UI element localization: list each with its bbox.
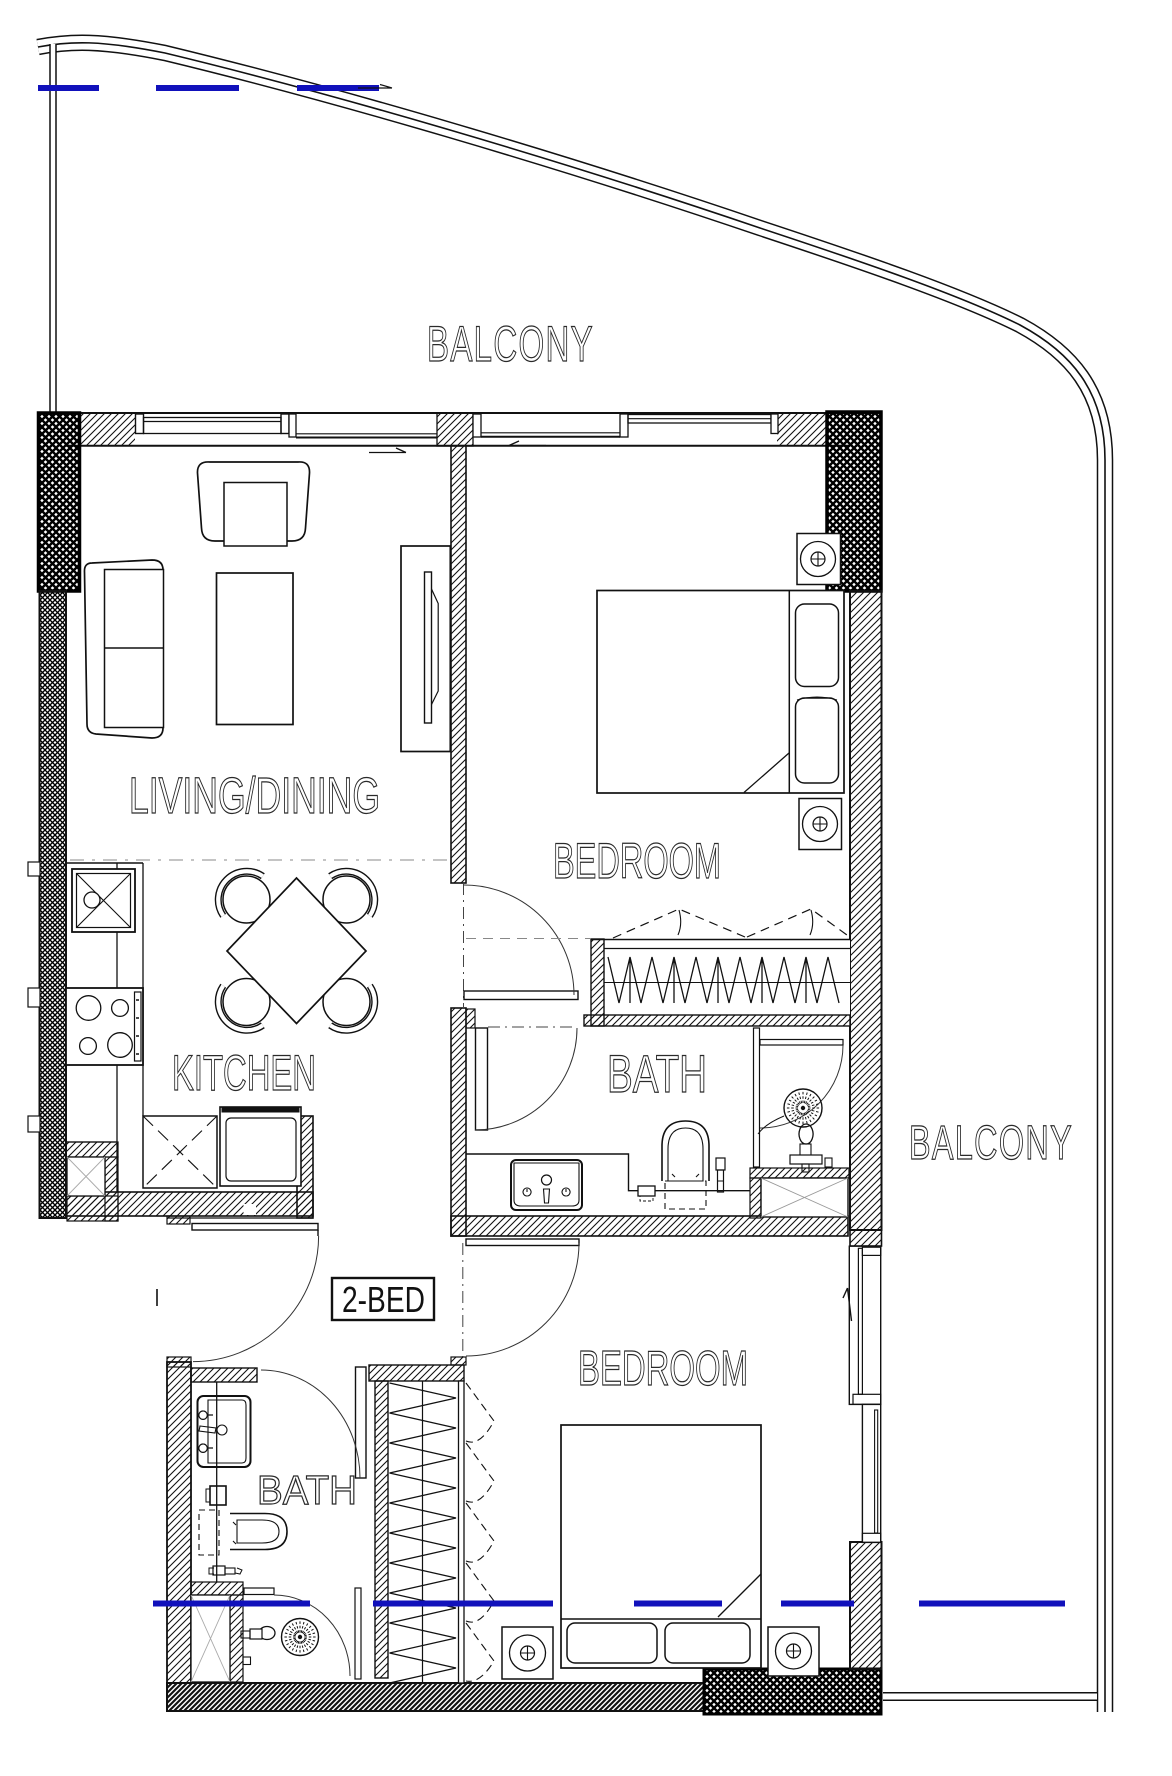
svg-text:2-BED: 2-BED <box>342 1279 425 1320</box>
svg-text:BATH: BATH <box>257 1467 357 1513</box>
svg-text:BEDROOM: BEDROOM <box>578 1342 748 1396</box>
svg-text:BALCONY: BALCONY <box>427 316 594 372</box>
svg-text:BALCONY: BALCONY <box>909 1117 1073 1170</box>
svg-text:LIVING/DINING: LIVING/DINING <box>129 767 380 824</box>
svg-text:BATH: BATH <box>607 1045 707 1104</box>
svg-text:BEDROOM: BEDROOM <box>553 833 721 889</box>
svg-text:KITCHEN: KITCHEN <box>172 1045 316 1101</box>
